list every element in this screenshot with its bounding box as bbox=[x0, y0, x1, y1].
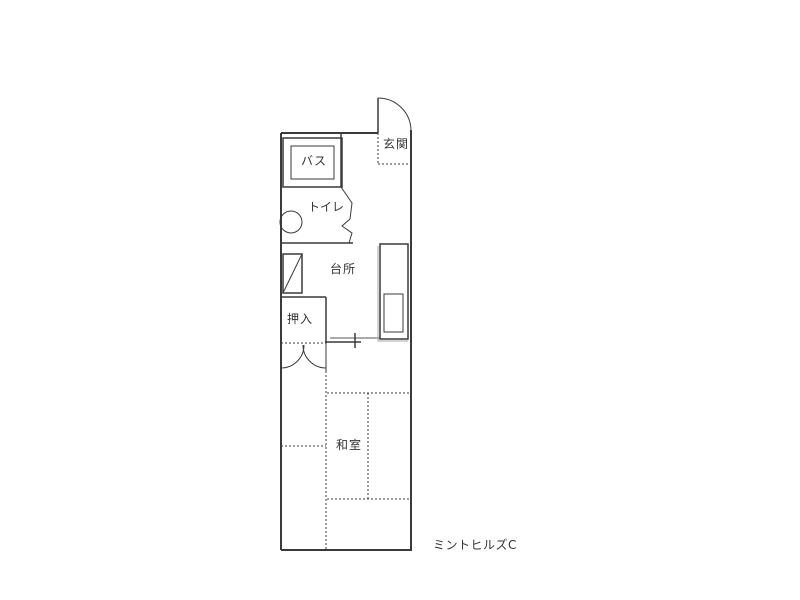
closet-door-arc-left bbox=[281, 345, 304, 368]
floorplan-drawing bbox=[0, 0, 800, 600]
kitchen-label: 台所 bbox=[330, 262, 356, 276]
toilet-bowl-icon bbox=[280, 211, 302, 233]
entrance-door-swing-arc-icon bbox=[378, 98, 411, 131]
building-name-label: ミントヒルズC bbox=[433, 536, 517, 553]
closet-label: 押入 bbox=[287, 312, 313, 326]
washitsu-label: 和室 bbox=[336, 438, 362, 452]
bath-label: バス bbox=[301, 154, 327, 168]
wall-break-zigzag bbox=[341, 187, 352, 243]
toilet-label: トイレ bbox=[308, 200, 344, 214]
washing-machine-diagonal bbox=[283, 254, 302, 293]
genkan-label: 玄関 bbox=[383, 137, 409, 151]
floorplan-page: 玄関 バス トイレ 台所 押入 和室 ミントヒルズC bbox=[0, 0, 800, 600]
closet-door-arc-right bbox=[303, 345, 326, 368]
kitchen-sink bbox=[384, 294, 403, 332]
